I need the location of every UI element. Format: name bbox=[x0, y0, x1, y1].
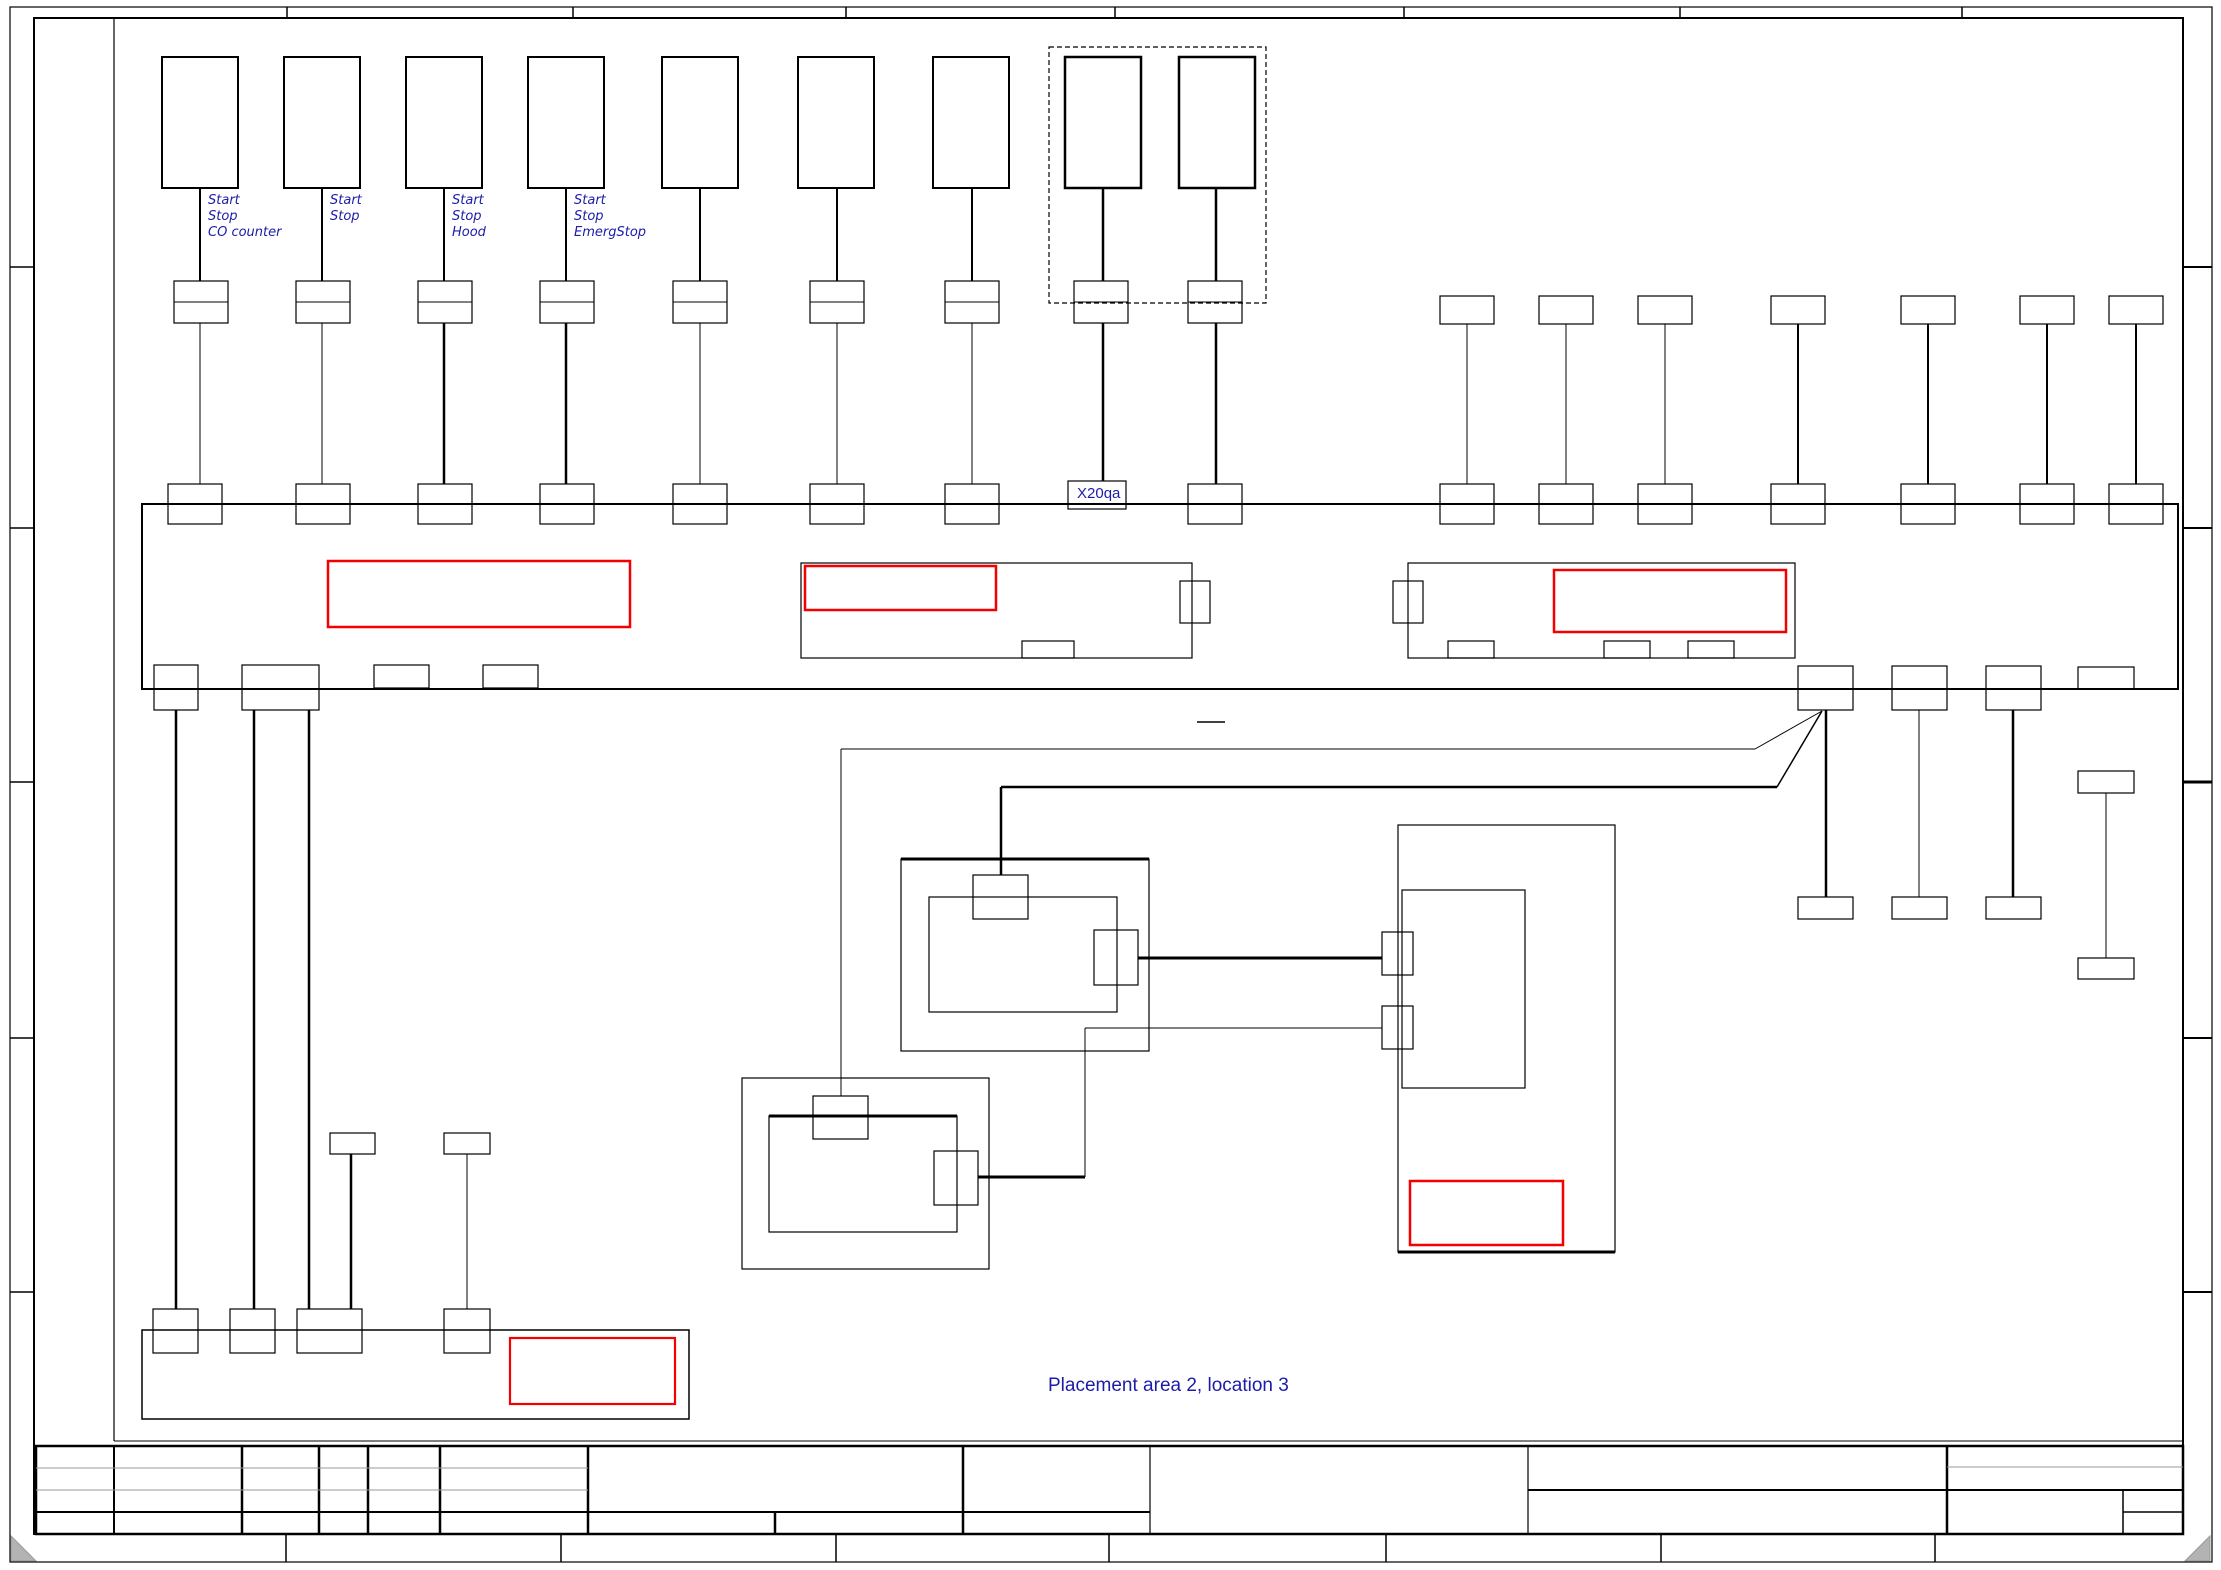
highlight-zone-3 bbox=[1554, 570, 1786, 632]
pushbutton-2 bbox=[284, 57, 360, 188]
pushbutton-8 bbox=[1065, 57, 1141, 188]
top-terminal-3 bbox=[1638, 296, 1692, 324]
station-label-2: Start Stop bbox=[330, 193, 362, 225]
schematic-drawing bbox=[0, 0, 2221, 1570]
controller-inner bbox=[1402, 890, 1525, 1088]
highlight-zone-1 bbox=[328, 561, 630, 627]
pushbutton-5 bbox=[662, 57, 738, 188]
stub-box-2 bbox=[444, 1133, 490, 1154]
module-port-1 bbox=[1180, 581, 1210, 623]
controller-box bbox=[1398, 825, 1615, 1252]
module-tab-2 bbox=[1448, 641, 1494, 658]
dashed-emergstop-group bbox=[1049, 47, 1266, 303]
module-tab-4 bbox=[1688, 641, 1734, 658]
wire bbox=[1777, 711, 1822, 787]
highlight-zone-4 bbox=[1410, 1181, 1563, 1245]
fold-mark-right bbox=[2185, 1536, 2210, 1561]
strip-connector-4 bbox=[444, 1309, 490, 1353]
top-terminal-1 bbox=[1440, 296, 1494, 324]
strip-connector-2 bbox=[230, 1309, 275, 1353]
top-terminal-6 bbox=[2020, 296, 2074, 324]
top-terminal-4 bbox=[1771, 296, 1825, 324]
highlight-zone-2 bbox=[805, 566, 996, 610]
stub-terminal-top bbox=[2078, 771, 2134, 793]
rail-bottom-tab-3 bbox=[2078, 667, 2134, 689]
end-terminal-1 bbox=[1798, 897, 1853, 919]
placement-note: Placement area 2, location 3 bbox=[1048, 1375, 1289, 1397]
module-tab-1 bbox=[1022, 641, 1074, 658]
device-box-2 bbox=[742, 1078, 989, 1269]
schematic-page: Start Stop CO counter Start Stop Start S… bbox=[0, 0, 2221, 1570]
end-terminal-2 bbox=[1892, 897, 1947, 919]
pushbutton-6 bbox=[798, 57, 874, 188]
rail-bottom-terminal-2 bbox=[242, 665, 319, 710]
module-tab-3 bbox=[1604, 641, 1650, 658]
terminal-designation-label: X20qa bbox=[1077, 485, 1120, 503]
top-terminal-2 bbox=[1539, 296, 1593, 324]
pushbutton-1 bbox=[162, 57, 238, 188]
device-box-2-port bbox=[934, 1151, 978, 1205]
stub-terminal-bottom bbox=[2078, 958, 2134, 979]
rail-bottom-tab-2 bbox=[483, 665, 538, 688]
wire bbox=[1755, 711, 1822, 749]
top-terminal-7 bbox=[2109, 296, 2163, 324]
strip-connector-1 bbox=[153, 1309, 198, 1353]
device-box-1-inner bbox=[929, 897, 1117, 1012]
top-terminal-5 bbox=[1901, 296, 1955, 324]
mounting-rail bbox=[142, 504, 2178, 689]
bottom-terminal-strip bbox=[142, 1330, 689, 1419]
highlight-zone-5 bbox=[510, 1338, 675, 1404]
pushbutton-4 bbox=[528, 57, 604, 188]
rail-module-right bbox=[1408, 563, 1795, 658]
rail-bottom-terminal-1 bbox=[154, 665, 198, 710]
end-terminal-3 bbox=[1986, 897, 2041, 919]
device-box-1 bbox=[901, 859, 1149, 1051]
station-label-3: Start Stop Hood bbox=[452, 193, 486, 241]
fold-mark-left bbox=[11, 1536, 36, 1561]
stub-box-1 bbox=[330, 1133, 375, 1154]
rail-bottom-tab-1 bbox=[374, 665, 429, 688]
drawing-frame bbox=[34, 18, 2183, 1534]
station-label-1: Start Stop CO counter bbox=[208, 193, 281, 241]
device-box-1-port bbox=[1094, 930, 1138, 985]
strip-connector-3 bbox=[297, 1309, 362, 1353]
page-border bbox=[10, 7, 2212, 1562]
station-label-4: Start Stop EmergStop bbox=[574, 193, 646, 241]
pushbutton-3 bbox=[406, 57, 482, 188]
pushbutton-7 bbox=[933, 57, 1009, 188]
device-box-2-inner bbox=[769, 1116, 957, 1232]
pushbutton-9 bbox=[1179, 57, 1255, 188]
